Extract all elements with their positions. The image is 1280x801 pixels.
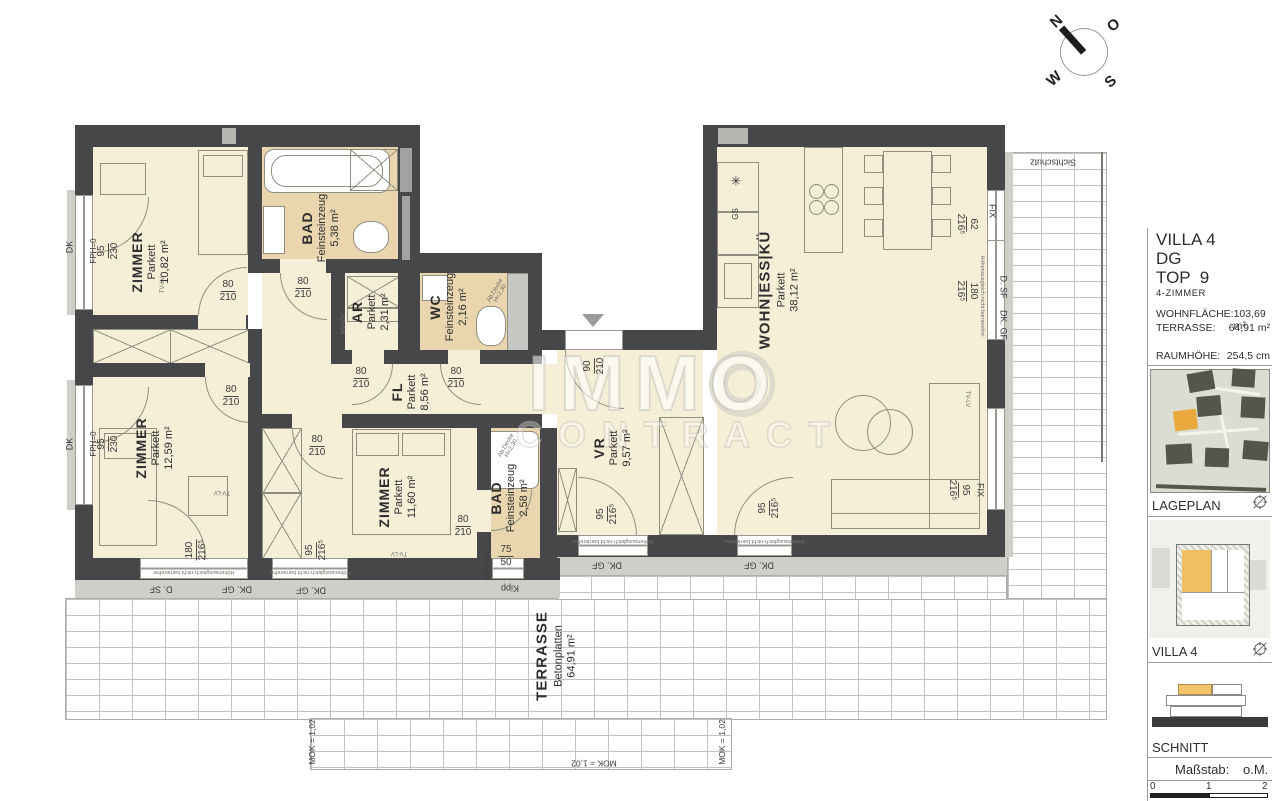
shaft bbox=[507, 273, 530, 352]
section-level bbox=[1212, 684, 1242, 695]
pillow-zimmer3-b bbox=[402, 433, 445, 456]
kitchen-sink-basin bbox=[724, 263, 752, 299]
room-name: WOHN|ESS|KÜ bbox=[758, 231, 775, 350]
wall-vent bbox=[222, 128, 236, 144]
room-area: 5,38 m² bbox=[330, 209, 342, 246]
door-dim: 80210 bbox=[353, 366, 370, 390]
washer-bad1 bbox=[350, 149, 398, 191]
window-note: FPH=0 bbox=[90, 238, 98, 263]
room-floor: Parkett bbox=[394, 480, 406, 515]
section-level bbox=[1170, 706, 1242, 717]
room-label-vr: VR Parkett 9,57 m² bbox=[592, 429, 634, 466]
room-label-ar: AR Parkett 2,31 m² bbox=[350, 293, 392, 330]
wall-segment bbox=[75, 125, 93, 580]
room-name: TERRASSE bbox=[535, 611, 552, 701]
window-note: FPH=0 bbox=[90, 431, 98, 456]
scalebar-segment bbox=[1209, 793, 1268, 798]
window-dim: 180216⁵ bbox=[955, 281, 979, 302]
compass-rose: N O S W bbox=[1036, 4, 1132, 100]
terrace-height-label: MOK = 1,02 bbox=[308, 719, 317, 765]
sidebar-divider bbox=[1147, 516, 1272, 517]
sill-right-wall bbox=[1005, 152, 1013, 557]
tv-connection-label: TV-LV bbox=[964, 391, 970, 407]
door-dim: 80210 bbox=[223, 384, 240, 408]
window-opening bbox=[987, 408, 1005, 510]
compass-rotated-group: N O S W bbox=[1016, 0, 1152, 120]
window-type: D. SF bbox=[149, 585, 172, 594]
door-opening bbox=[205, 363, 250, 377]
room-area: 64,91 m² bbox=[565, 634, 577, 677]
site-building-highlight bbox=[1173, 409, 1198, 432]
room-name: ZIMMER bbox=[130, 231, 145, 292]
section-ground bbox=[1152, 717, 1268, 727]
window-type: FIX bbox=[976, 483, 985, 497]
window-type: DK. GF bbox=[296, 586, 326, 595]
desk-zimmer1 bbox=[100, 163, 146, 195]
tv-connection-label: TV-LV bbox=[160, 277, 166, 293]
privacy-screen-label: Sichtschutz bbox=[1030, 158, 1076, 167]
sofa-vertical bbox=[929, 383, 980, 529]
scalebar-tick-1: 1 bbox=[1206, 781, 1212, 792]
dining-chair-1 bbox=[864, 155, 883, 173]
room-floor: Parkett bbox=[609, 431, 621, 466]
dining-chair-6 bbox=[932, 219, 951, 237]
scalebar-tick-0: 0 bbox=[1150, 781, 1156, 792]
pillow-zimmer1 bbox=[203, 155, 243, 177]
window-dim: 95230 bbox=[96, 243, 120, 260]
window-type: FIX bbox=[988, 204, 997, 218]
section-label-schnitt: SCHNITT bbox=[1152, 740, 1208, 755]
terrace-area-right bbox=[1007, 152, 1107, 600]
section-unit-highlight bbox=[1178, 684, 1212, 695]
window-type: DK. GF bbox=[592, 561, 622, 570]
window-type: DK bbox=[66, 438, 75, 451]
room-name: ZIMMER bbox=[134, 417, 149, 478]
villa-room-line bbox=[1182, 592, 1244, 593]
shaft-bar bbox=[402, 196, 410, 260]
wall-vent bbox=[718, 128, 748, 144]
stat-label: RAUMHÖHE: bbox=[1156, 350, 1220, 362]
door-opening bbox=[448, 350, 480, 364]
room-floor: Betonplatten bbox=[552, 625, 564, 687]
window-type: D. SF bbox=[999, 275, 1008, 298]
scale-value: o.M. bbox=[1243, 762, 1268, 777]
cooktop-burner-3 bbox=[809, 200, 824, 215]
cooktop-burner-4 bbox=[824, 200, 839, 215]
window-type: DK bbox=[66, 241, 75, 254]
section-label-villa: VILLA 4 bbox=[1152, 644, 1198, 659]
dining-chair-2 bbox=[864, 187, 883, 205]
room-floor: Parkett bbox=[407, 375, 419, 410]
tv-table-zimmer2 bbox=[188, 476, 228, 516]
terrace-height-label: MOK = 1,02 bbox=[718, 719, 727, 765]
room-area: 12,59 m² bbox=[164, 426, 176, 469]
room-name: ZIMMER bbox=[377, 466, 392, 527]
project-title: VILLA 4 bbox=[1156, 230, 1216, 250]
room-name: BAD bbox=[300, 211, 315, 244]
door-dim: 80210 bbox=[455, 514, 472, 538]
door-dim: 80210 bbox=[295, 276, 312, 300]
cooktop-burner-1 bbox=[809, 184, 824, 199]
door-opening bbox=[292, 414, 342, 428]
coffee-table-2 bbox=[867, 409, 913, 455]
wall-segment bbox=[398, 253, 542, 273]
floorplan-page: ZIMMER Parkett 10,82 m² BAD Feinsteinzeu… bbox=[0, 0, 1280, 801]
stat-row: RAUMHÖHE: 254,5 cm bbox=[1156, 350, 1270, 362]
site-building bbox=[1165, 443, 1192, 464]
toilet-bad1 bbox=[353, 221, 389, 253]
wall-segment bbox=[248, 147, 262, 273]
window-dim: 95216⁵ bbox=[947, 480, 971, 501]
room-floor: Parkett bbox=[151, 431, 163, 466]
site-building bbox=[1231, 368, 1255, 388]
project-unit: TOP 9 bbox=[1156, 268, 1209, 288]
entrance-marker bbox=[582, 314, 604, 327]
window-note: FPH=172 bbox=[485, 550, 492, 580]
sofa-cushion-line bbox=[831, 513, 978, 514]
sink-bad1 bbox=[263, 206, 285, 254]
dining-chair-5 bbox=[932, 187, 951, 205]
wall-segment bbox=[703, 125, 717, 350]
wardrobe-closet-strip-b bbox=[170, 329, 250, 364]
room-name: BAD bbox=[489, 481, 504, 514]
room-area: 11,60 m² bbox=[407, 476, 419, 519]
terrace-height-label: MOK = 1,02 bbox=[571, 759, 617, 768]
scale-label: Maßstab: bbox=[1175, 762, 1229, 777]
villa-neighbor bbox=[1152, 548, 1170, 588]
scalebar-tick-2: 2 bbox=[1262, 781, 1268, 792]
site-building bbox=[1240, 396, 1265, 418]
shaft-bar bbox=[400, 148, 412, 192]
wardrobe-vr-small bbox=[558, 468, 577, 532]
wall-segment bbox=[528, 253, 542, 350]
barrier-note: Höhenausgleich-nicht barrierefrei bbox=[572, 537, 653, 543]
room-floor: Feinsteinzeug bbox=[317, 194, 329, 263]
villa-neighbor bbox=[1248, 560, 1266, 590]
room-floor: Parkett bbox=[775, 273, 787, 308]
room-floor: Feinsteinzeug bbox=[506, 464, 518, 533]
terrace-area-notch bbox=[310, 718, 732, 770]
privacy-screen-line bbox=[1101, 152, 1103, 462]
door-dim: 80210 bbox=[448, 366, 465, 390]
dining-table bbox=[883, 151, 932, 250]
door-dim: 80210 bbox=[220, 279, 237, 303]
toilet-wc bbox=[476, 306, 506, 346]
room-floor: Parkett bbox=[367, 295, 379, 330]
tv-connection-label: TV-LV bbox=[391, 550, 407, 556]
room-floor: Parkett bbox=[147, 245, 159, 280]
terrace-area-step bbox=[557, 575, 1007, 600]
window-dim: 95230 bbox=[96, 436, 120, 453]
project-floor: DG bbox=[1156, 249, 1182, 269]
window-opening bbox=[987, 190, 1005, 247]
window-dim: 95216⁵ bbox=[595, 504, 619, 525]
cooktop-burner-2 bbox=[824, 184, 839, 199]
wardrobe-closet-strip-a bbox=[93, 329, 171, 364]
barrier-note: Höhenausgleich-nicht barrierefrei bbox=[723, 537, 804, 543]
media-connection-label: MV+EV bbox=[341, 314, 347, 335]
dining-chair-4 bbox=[932, 155, 951, 173]
window-type: DK. GF bbox=[744, 561, 774, 570]
window-type: DK. GF bbox=[999, 310, 1008, 340]
room-label-fl: FL Parkett 8,56 m² bbox=[390, 373, 432, 410]
wall-segment bbox=[248, 329, 262, 558]
pillow-zimmer3-a bbox=[356, 433, 399, 456]
barrier-note: Höhenausgleich-nicht barrierefrei bbox=[153, 568, 234, 574]
wardrobe-closet2-b bbox=[262, 492, 302, 559]
mini-compass-icon bbox=[1251, 640, 1269, 658]
villa-unit-highlight bbox=[1182, 550, 1212, 592]
site-building bbox=[1242, 440, 1269, 461]
room-label-terrasse: TERRASSE Betonplatten 64,91 m² bbox=[535, 611, 578, 701]
stat-row: TERRASSE: 64,91 m² bbox=[1156, 322, 1270, 334]
sidebar-divider bbox=[1147, 365, 1272, 366]
compass-east: O bbox=[1104, 15, 1124, 35]
stat-value: 254,5 cm bbox=[1227, 350, 1270, 362]
mini-compass-icon bbox=[1251, 493, 1269, 511]
barrier-note: Höhenausgleich-nicht barrierefrei bbox=[269, 568, 350, 574]
room-label-wc: WC Feinsteinzeug 2,16 m² bbox=[428, 273, 470, 342]
site-building bbox=[1196, 395, 1222, 417]
window-type: DK. GF bbox=[222, 585, 252, 594]
villa-room-line bbox=[1227, 550, 1228, 592]
door-dim: 80210 bbox=[309, 434, 326, 458]
room-area: 2,16 m² bbox=[458, 288, 470, 325]
window-dim: 180216⁵ bbox=[184, 540, 208, 561]
room-floor: Feinsteinzeug bbox=[445, 273, 457, 342]
sill-bottom-right-wing bbox=[557, 557, 1007, 575]
scalebar-segment bbox=[1150, 793, 1209, 798]
room-area: 8,56 m² bbox=[420, 373, 432, 410]
kitchen-island bbox=[804, 147, 843, 253]
room-area: 2,58 m² bbox=[519, 479, 531, 516]
watermark-contract: CONTRACT bbox=[516, 414, 846, 456]
stat-label: TERRASSE: bbox=[1156, 322, 1216, 334]
window-dim: 95216⁵ bbox=[304, 540, 328, 561]
terrace-area-bottom bbox=[65, 598, 1107, 720]
sidebar-divider-vertical bbox=[1147, 228, 1148, 801]
wall-segment bbox=[75, 125, 420, 147]
stat-value: 64,91 m² bbox=[1229, 322, 1270, 334]
window-dim: 95216⁵ bbox=[757, 498, 781, 519]
section-label-lageplan: LAGEPLAN bbox=[1152, 498, 1221, 513]
project-type: 4-ZIMMER bbox=[1156, 288, 1206, 299]
sidebar-divider bbox=[1147, 662, 1272, 663]
freezer-symbol: ✳ bbox=[731, 175, 742, 188]
wall-segment bbox=[398, 273, 420, 350]
wall-segment bbox=[703, 125, 1005, 147]
room-area: 38,12 m² bbox=[788, 268, 800, 311]
dishwasher-label: GS bbox=[732, 208, 740, 220]
room-name: WC bbox=[428, 294, 443, 319]
room-label-zimmer2: ZIMMER Parkett 12,59 m² bbox=[134, 417, 176, 478]
section-level bbox=[1166, 695, 1246, 706]
sidebar-divider bbox=[1147, 757, 1272, 758]
site-building bbox=[1205, 448, 1230, 468]
room-area: 2,31 m² bbox=[380, 293, 392, 330]
window-type: Kipp bbox=[501, 584, 519, 593]
room-name: AR bbox=[350, 301, 365, 323]
room-name: FL bbox=[390, 382, 405, 401]
window-dim: 62216⁵ bbox=[955, 214, 979, 235]
compass-west: W bbox=[1043, 68, 1065, 90]
tv-connection-label: TV-LV bbox=[214, 489, 230, 495]
room-label-wohnesskue: WOHN|ESS|KÜ Parkett 38,12 m² bbox=[758, 231, 801, 350]
room-area: 9,57 m² bbox=[622, 429, 634, 466]
entry-door-dim: 90210 bbox=[582, 358, 606, 375]
door-opening bbox=[352, 350, 384, 364]
room-label-bad1: BAD Feinsteinzeug 5,38 m² bbox=[300, 194, 342, 263]
barrier-note: Höhenausgleich-nicht barrierefrei bbox=[978, 255, 984, 336]
compass-south: S bbox=[1101, 72, 1120, 91]
door-opening bbox=[198, 315, 246, 329]
room-label-zimmer3: ZIMMER Parkett 11,60 m² bbox=[377, 466, 419, 527]
room-label-bad2: BAD Feinsteinzeug 2,58 m² bbox=[489, 464, 531, 533]
dining-chair-3 bbox=[864, 219, 883, 237]
window-dim: 7550 bbox=[498, 544, 513, 568]
room-name: VR bbox=[592, 437, 607, 458]
